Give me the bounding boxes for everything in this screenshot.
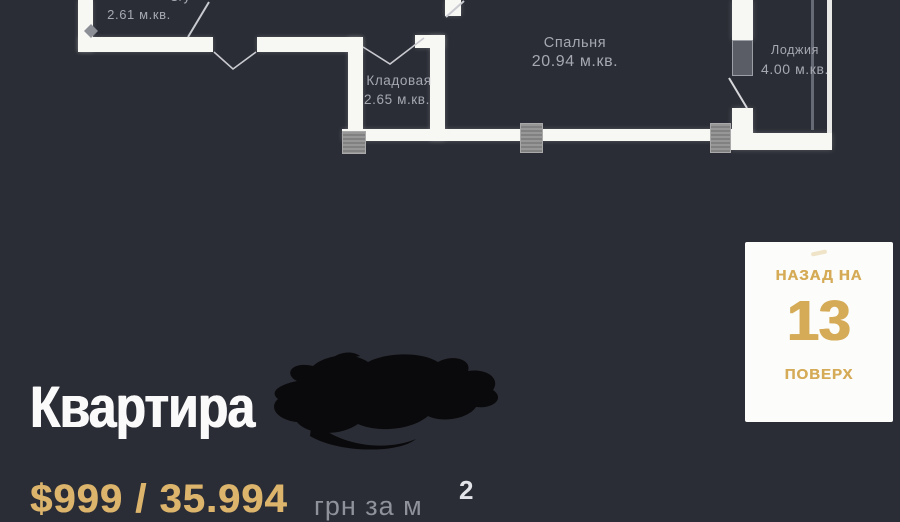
column-pillar [710, 123, 731, 153]
door-swing-line [214, 52, 256, 69]
card-smudge-mark [811, 249, 827, 256]
room-area-loggia: 4.00 м.кв. [750, 61, 840, 77]
room-area-bedroom: 20.94 м.кв. [505, 53, 645, 71]
floor-card-back-label: НАЗАД НА [776, 267, 863, 284]
room-area-bathroom: 2.61 м.кв. [99, 8, 179, 23]
wall-bottom [342, 129, 752, 141]
room-label-bathroom: С/у [150, 0, 210, 5]
door-swing-line [729, 78, 747, 108]
floor-card-floor-label: ПОВЕРХ [785, 366, 854, 383]
wall-top-left [78, 37, 213, 52]
screenshot-stage: С/у 2.61 м.кв. Кладовая 2.65 м.кв. Спаль… [0, 0, 900, 500]
room-area-storage: 2.65 м.кв. [347, 92, 447, 108]
column-pillar [342, 131, 366, 154]
floor-back-card[interactable]: НАЗАД НА 13 ПОВЕРХ [745, 242, 893, 422]
wall-loggia-left-top [732, 0, 753, 40]
door-swing-line [188, 2, 209, 37]
listing-title: Квартира [30, 374, 254, 441]
room-label-storage: Кладовая [349, 73, 449, 89]
room-label-bedroom: Спальня [515, 35, 635, 52]
wall-storage-left [348, 37, 363, 141]
wall-loggia-left-bottom [732, 108, 753, 138]
floor-card-number: 13 [787, 293, 850, 350]
column-pillar [520, 123, 543, 153]
wall-corridor-stub [445, 0, 461, 16]
price-unit-superscript: 2 [459, 475, 473, 506]
room-label-loggia: Лоджия [755, 43, 835, 57]
price-unit: грн за м [314, 491, 423, 522]
